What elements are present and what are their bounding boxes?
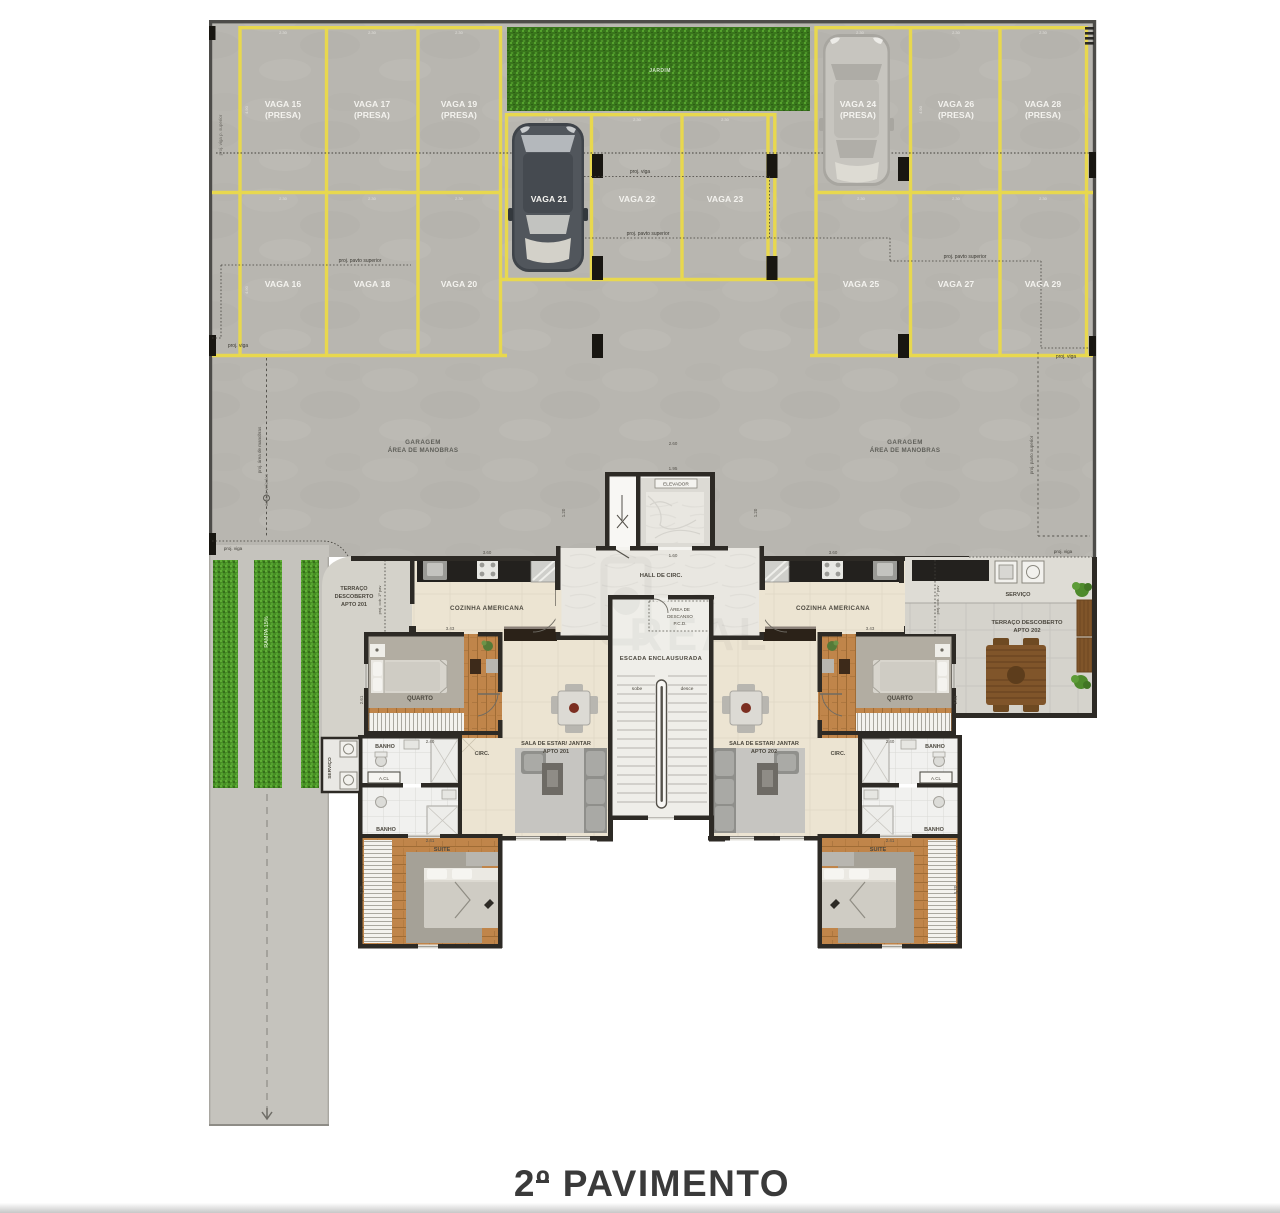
svg-text:APTO 202: APTO 202 — [1013, 628, 1040, 634]
svg-text:1.20: 1.20 — [753, 508, 758, 517]
svg-text:acesso veículos: acesso veículos — [264, 473, 269, 506]
svg-text:2.30: 2.30 — [952, 30, 961, 35]
svg-text:ÁREA DE MANOBRAS: ÁREA DE MANOBRAS — [870, 447, 941, 454]
svg-text:2.30: 2.30 — [857, 196, 866, 201]
svg-text:3.60: 3.60 — [829, 550, 838, 555]
svg-text:APTO 202: APTO 202 — [751, 749, 777, 755]
svg-text:VAGA 18: VAGA 18 — [354, 279, 391, 289]
svg-text:VAGA 16: VAGA 16 — [265, 279, 302, 289]
svg-text:VAGA 21: VAGA 21 — [531, 194, 568, 204]
svg-text:2.40: 2.40 — [545, 117, 554, 122]
svg-text:VAGA 26: VAGA 26 — [938, 99, 975, 109]
svg-text:SALA DE ESTAR/ JANTAR: SALA DE ESTAR/ JANTAR — [729, 741, 799, 747]
svg-text:2.30: 2.30 — [368, 196, 377, 201]
svg-text:GARAGEM: GARAGEM — [405, 439, 441, 446]
svg-text:2.30: 2.30 — [279, 196, 288, 201]
svg-text:QUARTO: QUARTO — [407, 696, 433, 702]
svg-text:JARDIM: JARDIM — [649, 68, 671, 74]
svg-text:3.20: 3.20 — [953, 885, 958, 894]
svg-text:2.41: 2.41 — [886, 838, 895, 843]
svg-text:BANHO: BANHO — [924, 827, 944, 833]
svg-text:2.30: 2.30 — [279, 30, 288, 35]
svg-text:(PRESA): (PRESA) — [840, 110, 876, 120]
svg-text:A.CL: A.CL — [379, 776, 390, 781]
svg-text:proj. viga: proj. viga — [630, 169, 651, 175]
svg-text:proj. viga: proj. viga — [224, 546, 243, 551]
svg-text:TERRAÇO DESCOBERTO: TERRAÇO DESCOBERTO — [991, 620, 1063, 626]
svg-text:VAGA 20: VAGA 20 — [441, 279, 478, 289]
svg-text:APTO 201: APTO 201 — [341, 602, 367, 608]
svg-text:proj. viga p. superior: proj. viga p. superior — [218, 114, 223, 155]
svg-text:2.30: 2.30 — [368, 30, 377, 35]
svg-text:BANHO: BANHO — [925, 744, 945, 750]
svg-text:RAMPA 15%: RAMPA 15% — [264, 616, 270, 647]
svg-text:proj. viga: proj. viga — [228, 343, 249, 349]
svg-text:ELEVADOR: ELEVADOR — [663, 482, 689, 488]
svg-text:2.30: 2.30 — [455, 196, 464, 201]
svg-text:2.30: 2.30 — [455, 30, 464, 35]
svg-text:2.30: 2.30 — [721, 117, 730, 122]
svg-text:VAGA 19: VAGA 19 — [441, 99, 478, 109]
svg-text:CIRC.: CIRC. — [475, 751, 490, 757]
svg-text:4.90: 4.90 — [244, 285, 249, 294]
svg-text:SUITE: SUITE — [434, 847, 451, 853]
svg-text:proj. pavto superior: proj. pavto superior — [627, 231, 670, 237]
svg-text:VAGA 28: VAGA 28 — [1025, 99, 1062, 109]
svg-text:3.43: 3.43 — [866, 626, 875, 631]
svg-text:VAGA 23: VAGA 23 — [707, 194, 744, 204]
svg-text:VAGA 17: VAGA 17 — [354, 99, 391, 109]
svg-text:3.60: 3.60 — [483, 550, 492, 555]
svg-text:proj. cob. 1º pav: proj. cob. 1º pav — [377, 586, 382, 615]
svg-text:BANHO: BANHO — [376, 827, 396, 833]
svg-text:sobe: sobe — [632, 686, 643, 692]
svg-text:COZINHA AMERICANA: COZINHA AMERICANA — [450, 605, 524, 612]
svg-text:proj. pavto superior: proj. pavto superior — [944, 254, 987, 260]
svg-text:proj. cob. 1º pav: proj. cob. 1º pav — [935, 586, 940, 615]
svg-text:4.90: 4.90 — [918, 105, 923, 114]
svg-text:(PRESA): (PRESA) — [354, 110, 390, 120]
svg-text:VAGA 25: VAGA 25 — [843, 279, 880, 289]
svg-text:2.41: 2.41 — [426, 838, 435, 843]
svg-text:VAGA 27: VAGA 27 — [938, 279, 975, 289]
svg-text:1.95: 1.95 — [669, 466, 678, 471]
svg-text:(PRESA): (PRESA) — [265, 110, 301, 120]
svg-text:SUITE: SUITE — [870, 847, 887, 853]
svg-text:1.20: 1.20 — [561, 508, 566, 517]
svg-text:desce: desce — [681, 686, 694, 692]
svg-text:2.30: 2.30 — [952, 196, 961, 201]
svg-text:A.CL: A.CL — [931, 776, 942, 781]
svg-text:2º PAVIMENTO: 2º PAVIMENTO — [514, 1163, 790, 1204]
svg-text:2.40: 2.40 — [886, 739, 895, 744]
svg-text:2.60: 2.60 — [669, 441, 678, 446]
svg-text:QUARTO: QUARTO — [887, 696, 913, 702]
svg-text:proj. viga: proj. viga — [1054, 549, 1073, 554]
svg-text:2.61: 2.61 — [953, 695, 958, 704]
svg-text:APTO 201: APTO 201 — [543, 749, 569, 755]
svg-text:2.30: 2.30 — [633, 117, 642, 122]
svg-text:2.30: 2.30 — [1039, 30, 1048, 35]
svg-text:3.43: 3.43 — [446, 626, 455, 631]
svg-text:1.60: 1.60 — [669, 553, 678, 558]
svg-text:(PRESA): (PRESA) — [938, 110, 974, 120]
svg-text:ÁREA DE MANOBRAS: ÁREA DE MANOBRAS — [388, 447, 459, 454]
svg-text:proj. pavto superior: proj. pavto superior — [1029, 435, 1034, 474]
svg-text:REAL: REAL — [629, 608, 770, 660]
svg-text:BANHO: BANHO — [375, 744, 395, 750]
svg-text:VAGA 22: VAGA 22 — [619, 194, 656, 204]
svg-text:SALA DE ESTAR/ JANTAR: SALA DE ESTAR/ JANTAR — [521, 741, 591, 747]
svg-text:COZINHA AMERICANA: COZINHA AMERICANA — [796, 605, 870, 612]
svg-text:4.90: 4.90 — [244, 105, 249, 114]
svg-text:DESCOBERTO: DESCOBERTO — [335, 594, 374, 600]
svg-text:CIRC.: CIRC. — [831, 751, 846, 757]
svg-text:VAGA 29: VAGA 29 — [1025, 279, 1062, 289]
svg-text:proj. viga: proj. viga — [1056, 354, 1077, 360]
svg-text:2.30: 2.30 — [1039, 196, 1048, 201]
svg-text:(PRESA): (PRESA) — [441, 110, 477, 120]
svg-text:proj. pavto superior: proj. pavto superior — [339, 258, 382, 264]
svg-text:2.61: 2.61 — [359, 695, 364, 704]
svg-text:(PRESA): (PRESA) — [1025, 110, 1061, 120]
svg-text:2.40: 2.40 — [426, 739, 435, 744]
svg-text:SERVIÇO: SERVIÇO — [327, 757, 333, 779]
svg-text:VAGA 15: VAGA 15 — [265, 99, 302, 109]
svg-text:3.20: 3.20 — [359, 885, 364, 894]
svg-text:SERVIÇO: SERVIÇO — [1005, 592, 1031, 598]
svg-text:TERRAÇO: TERRAÇO — [340, 586, 368, 592]
svg-text:VAGA 24: VAGA 24 — [840, 99, 877, 109]
svg-text:GARAGEM: GARAGEM — [887, 439, 923, 446]
svg-text:proj. área de manobras: proj. área de manobras — [257, 426, 262, 473]
